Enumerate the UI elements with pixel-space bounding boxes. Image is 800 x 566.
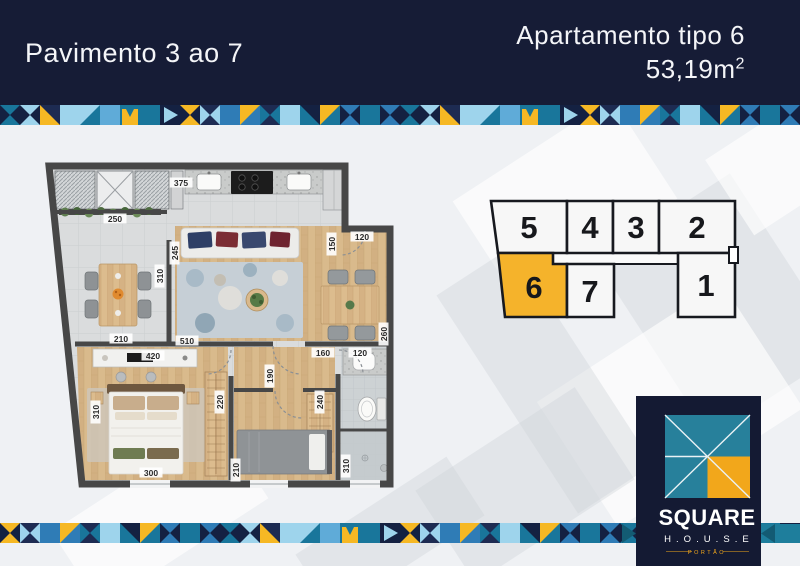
measurement-label: 300 [140, 468, 163, 479]
svg-text:310: 310 [341, 459, 351, 473]
mosaic-tile [560, 523, 580, 543]
mosaic-tile [220, 105, 240, 125]
key-plan: 5432671 [485, 193, 745, 325]
mosaic-tile [520, 105, 540, 125]
measurement-label: 310 [91, 401, 102, 424]
mosaic-tile [420, 523, 440, 543]
ribbon-right [761, 524, 800, 543]
mosaic-tile [380, 523, 400, 543]
logo-tagline: PORTÃO [688, 549, 726, 556]
measurement-label: 160 [312, 348, 335, 359]
svg-text:510: 510 [180, 336, 194, 346]
svg-text:310: 310 [155, 269, 165, 283]
chair [138, 272, 151, 290]
measurement-label: 260 [379, 323, 390, 346]
svg-text:120: 120 [355, 232, 369, 242]
mosaic-tile [600, 523, 620, 543]
logo-sub-text: H . O . U . S . E [664, 534, 750, 545]
mosaic-tile [80, 523, 100, 543]
pouf [116, 372, 126, 382]
mosaic-tile [40, 105, 60, 125]
mosaic-tile [100, 523, 120, 543]
mosaic-tile [660, 105, 680, 125]
svg-text:210: 210 [231, 463, 241, 477]
mosaic-tile [300, 105, 320, 125]
mosaic-tile [500, 105, 520, 125]
chair [355, 270, 375, 284]
decorative-mosaic-strip-top [0, 105, 800, 125]
chair [85, 300, 98, 318]
pillow [309, 434, 325, 470]
keyplan-lift-marker [729, 247, 738, 263]
measurement-label: 210 [231, 459, 242, 482]
storage-unit [135, 171, 169, 209]
fruit-bowl [113, 289, 124, 300]
mosaic-tile [380, 105, 400, 125]
measurement-label: 250 [104, 214, 127, 225]
mosaic-tile [220, 523, 240, 543]
measurement-label: 310 [155, 265, 166, 288]
shelf [171, 171, 183, 209]
mosaic-tile [760, 105, 780, 125]
mosaic-tile [60, 523, 80, 543]
brand-logo-box: SQUARE H . O . U . S . E PORTÃO [636, 396, 761, 566]
svg-text:160: 160 [316, 348, 330, 358]
svg-text:220: 220 [215, 395, 225, 409]
mosaic-tile [240, 105, 260, 125]
nightstand [187, 392, 199, 404]
mosaic-tile [180, 105, 200, 125]
mosaic-tile [640, 105, 660, 125]
mosaic-tile [440, 105, 460, 125]
mosaic-tile [460, 523, 480, 543]
svg-text:240: 240 [315, 395, 325, 409]
table-plant [346, 301, 355, 310]
svg-text:300: 300 [144, 468, 158, 478]
mosaic-tile [520, 523, 540, 543]
keyplan-unit-number-3: 3 [627, 210, 644, 245]
mosaic-tile [320, 105, 340, 125]
mosaic-tile [200, 523, 220, 543]
mosaic-tile [100, 105, 120, 125]
measurement-label: 220 [215, 391, 226, 414]
measurement-label: 150 [327, 233, 338, 256]
mosaic-tile [180, 523, 200, 543]
keyplan-unit-number-1: 1 [697, 268, 714, 303]
mosaic-tile [440, 523, 460, 543]
mosaic-tile [320, 523, 340, 543]
svg-text:375: 375 [174, 178, 188, 188]
mosaic-tile [720, 105, 740, 125]
pouf [146, 372, 156, 382]
apartment-header: Apartamento tipo 6 53,19m2 [516, 20, 745, 85]
kitchen-sink [197, 174, 221, 190]
toilet-tank [377, 398, 386, 420]
toilet [358, 397, 376, 421]
storage-unit [55, 171, 95, 209]
mosaic-tile [580, 523, 600, 543]
mosaic-tile [420, 105, 440, 125]
keyplan-unit-number-5: 5 [520, 210, 537, 245]
mosaic-tile [200, 105, 220, 125]
svg-text:120: 120 [353, 348, 367, 358]
svg-text:190: 190 [265, 369, 275, 383]
svg-text:245: 245 [170, 246, 180, 260]
mosaic-tile [20, 523, 40, 543]
chair [85, 272, 98, 290]
keyplan-unit-number-7: 7 [581, 274, 598, 309]
measurement-label: 210 [110, 334, 133, 345]
svg-text:310: 310 [91, 405, 101, 419]
mosaic-tile [480, 523, 500, 543]
keyplan-unit-number-2: 2 [688, 210, 705, 245]
brand-logo: SQUARE H . O . U . S . E PORTÃO [636, 396, 761, 566]
mosaic-tile [160, 105, 180, 125]
ribbon-fold-right [761, 524, 775, 543]
apartment-area: 53,19m2 [516, 54, 745, 85]
floor-plan: 3752501501202453102105104201601201902402… [35, 158, 425, 488]
chair [328, 326, 348, 340]
measurement-label: 310 [341, 455, 352, 478]
svg-text:260: 260 [379, 327, 389, 341]
chair [355, 326, 375, 340]
mosaic-tile [80, 105, 100, 125]
mosaic-tile [360, 523, 380, 543]
shower-head [381, 465, 388, 472]
svg-text:250: 250 [108, 214, 122, 224]
measurement-label: 375 [170, 178, 193, 189]
measurement-label: 190 [265, 365, 276, 388]
mosaic-tile [540, 105, 560, 125]
svg-text:150: 150 [327, 237, 337, 251]
mosaic-tile [0, 105, 20, 125]
mosaic-tile [680, 105, 700, 125]
mosaic-tile [460, 105, 480, 125]
page-background: Pavimento 3 ao 7 Apartamento tipo 6 53,1… [0, 0, 800, 566]
kitchen-sink [287, 174, 311, 190]
mosaic-tile [560, 105, 580, 125]
svg-text:210: 210 [114, 334, 128, 344]
measurement-label: 120 [351, 232, 374, 243]
mosaic-tile [0, 523, 20, 543]
mosaic-tile [260, 105, 280, 125]
keyplan-unit-number-4: 4 [581, 210, 599, 245]
mosaic-tile [120, 105, 140, 125]
mosaic-tile [360, 105, 380, 125]
mosaic-tile [780, 105, 800, 125]
measurement-label: 245 [170, 242, 181, 265]
mosaic-tile [740, 105, 760, 125]
measurement-label: 120 [349, 348, 372, 359]
mosaic-tile [40, 523, 60, 543]
mosaic-tile [340, 105, 360, 125]
keyplan-unit-number-6: 6 [525, 270, 542, 305]
measurement-label: 510 [176, 336, 199, 347]
chair [138, 300, 151, 318]
mosaic-tile [340, 523, 360, 543]
mosaic-tile [620, 105, 640, 125]
measurement-label: 420 [142, 351, 165, 362]
mosaic-tile [140, 105, 160, 125]
mosaic-tile [580, 105, 600, 125]
mosaic-tile [20, 105, 40, 125]
svg-text:420: 420 [146, 351, 160, 361]
mosaic-tile [60, 105, 80, 125]
mosaic-tile [160, 523, 180, 543]
mosaic-tile [400, 105, 420, 125]
mosaic-tile [540, 523, 560, 543]
mosaic-tile [280, 105, 300, 125]
mosaic-tile [120, 523, 140, 543]
stove [231, 171, 273, 194]
mosaic-tile [260, 523, 280, 543]
floor-range-title: Pavimento 3 ao 7 [25, 38, 243, 69]
mosaic-tile [280, 523, 300, 543]
mosaic-tile [500, 523, 520, 543]
mosaic-tile [600, 105, 620, 125]
header: Pavimento 3 ao 7 Apartamento tipo 6 53,1… [0, 0, 800, 105]
apartment-title: Apartamento tipo 6 [516, 20, 745, 51]
mosaic-tile [240, 523, 260, 543]
mosaic-tile [700, 105, 720, 125]
measurement-label: 240 [315, 391, 326, 414]
mosaic-tile [400, 523, 420, 543]
mosaic-tile [480, 105, 500, 125]
mosaic-tile [300, 523, 320, 543]
mosaic-tile [140, 523, 160, 543]
chair [328, 270, 348, 284]
logo-brand-text: SQUARE [658, 505, 755, 530]
